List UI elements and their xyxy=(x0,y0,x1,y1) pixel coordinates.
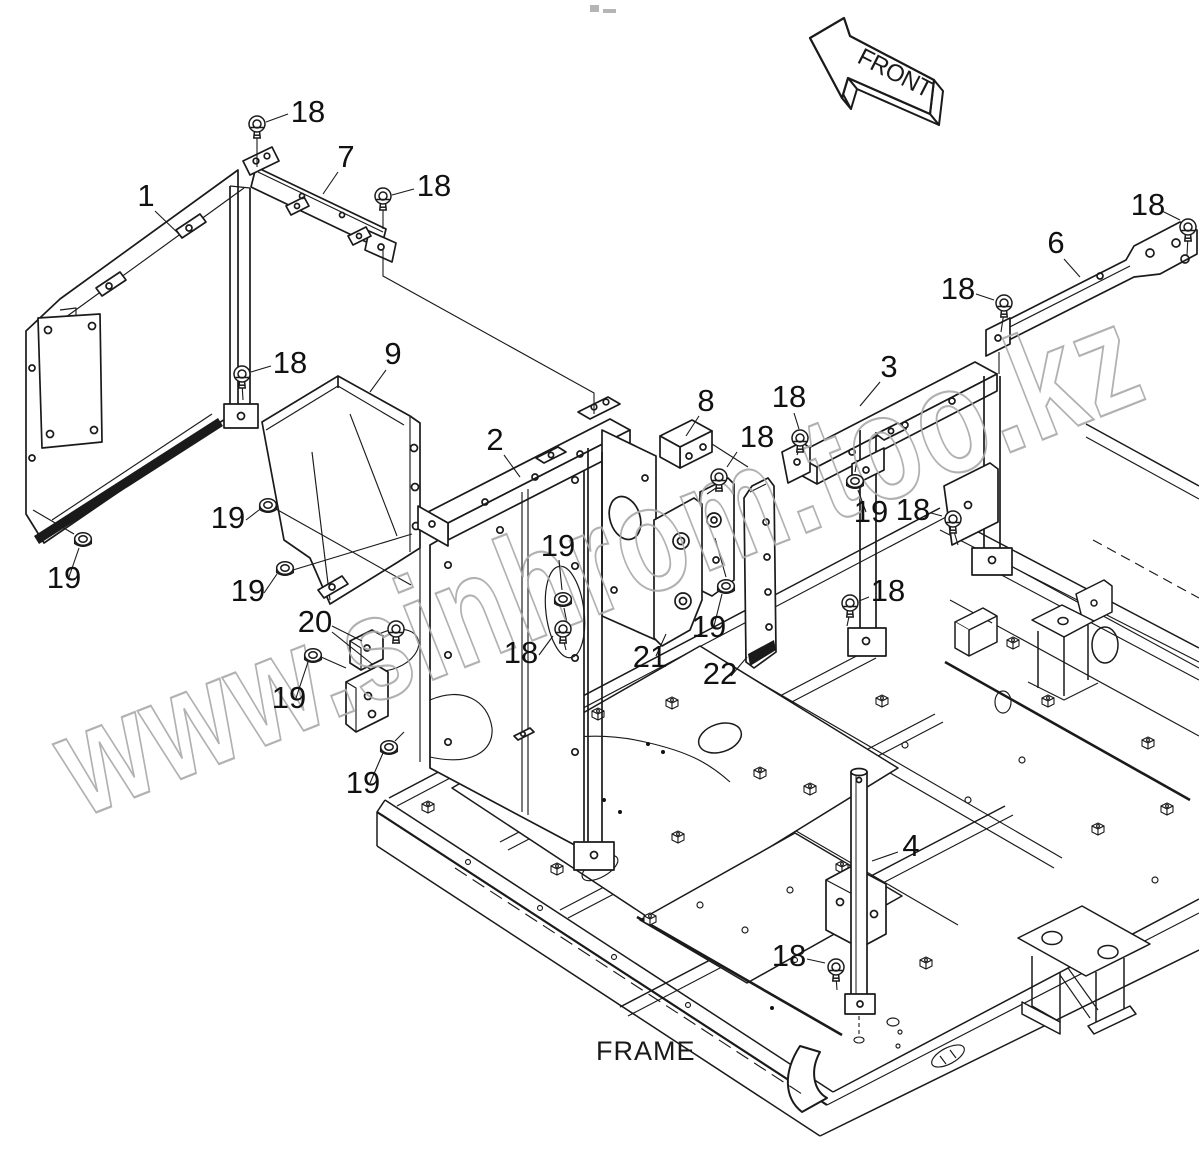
nut-icon xyxy=(718,580,735,594)
cube-nut-icon xyxy=(804,783,816,795)
frame-caption: FRAME xyxy=(596,1036,696,1066)
callout-label-22: 22 xyxy=(703,656,737,691)
callout-label-18: 18 xyxy=(504,635,538,670)
callout-label-6: 6 xyxy=(1047,225,1064,260)
part-7-strap xyxy=(243,147,396,262)
nut-icon xyxy=(847,475,864,489)
callout-label-4: 4 xyxy=(902,828,919,863)
cube-nut-icon xyxy=(1161,803,1173,815)
callout-label-18: 18 xyxy=(772,379,806,414)
callout-label-3: 3 xyxy=(880,349,897,384)
cube-nut-icon xyxy=(876,695,888,707)
callout-label-19: 19 xyxy=(346,765,380,800)
cube-nut-icon xyxy=(1142,737,1154,749)
cube-nut-icon xyxy=(1092,823,1104,835)
cube-nut-icon xyxy=(920,957,932,969)
callout-label-19: 19 xyxy=(272,680,306,715)
callout-label-9: 9 xyxy=(384,336,401,371)
callout-label-18: 18 xyxy=(417,168,451,203)
nut-icon xyxy=(75,533,92,547)
cube-nut-icon xyxy=(422,801,434,813)
callout-label-18: 18 xyxy=(772,938,806,973)
nut-icon xyxy=(555,593,572,607)
callout-label-18: 18 xyxy=(740,419,774,454)
cube-nut-icon xyxy=(551,863,563,875)
nut-icon xyxy=(305,649,322,663)
callout-label-18: 18 xyxy=(896,492,930,527)
cube-nut-icon xyxy=(666,697,678,709)
callout-label-21: 21 xyxy=(633,639,667,674)
cube-nut-icon xyxy=(644,913,656,925)
callout-label-19: 19 xyxy=(541,528,575,563)
cube-nut-icon xyxy=(1007,637,1019,649)
bolt-icon xyxy=(842,595,858,617)
callout-label-18: 18 xyxy=(941,271,975,306)
callout-label-18: 18 xyxy=(871,573,905,608)
callout-label-7: 7 xyxy=(337,139,354,174)
callout-label-20: 20 xyxy=(298,604,332,639)
callout-label-1: 1 xyxy=(137,178,154,213)
front-arrow: FRONT xyxy=(810,18,943,125)
callout-label-19: 19 xyxy=(231,573,265,608)
bolt-icon xyxy=(828,959,844,981)
callout-label-2: 2 xyxy=(486,422,503,457)
callout-label-18: 18 xyxy=(291,94,325,129)
callout-label-19: 19 xyxy=(692,609,726,644)
cube-nut-icon xyxy=(672,831,684,843)
nut-icon xyxy=(260,499,277,513)
callout-label-19: 19 xyxy=(211,500,245,535)
callout-label-18: 18 xyxy=(273,345,307,380)
parts-diagram: www.sinhrom.too.kz FRONT FRAME 187181186… xyxy=(0,0,1199,1149)
callout-label-19: 19 xyxy=(854,494,888,529)
bolt-icon xyxy=(375,188,391,210)
cube-nut-icon xyxy=(1042,695,1054,707)
part-1-panel xyxy=(26,170,258,544)
callout-label-19: 19 xyxy=(47,560,81,595)
part-4-bar xyxy=(826,769,886,1044)
nut-icon xyxy=(381,741,398,755)
bolt-icon xyxy=(249,116,265,138)
diagram-canvas: www.sinhrom.too.kz FRONT FRAME 187181186… xyxy=(0,0,1199,1149)
artifact-marks xyxy=(590,5,616,13)
callout-label-8: 8 xyxy=(697,383,714,418)
nut-icon xyxy=(277,562,294,576)
callout-label-18: 18 xyxy=(1131,187,1165,222)
cube-nut-icon xyxy=(754,767,766,779)
